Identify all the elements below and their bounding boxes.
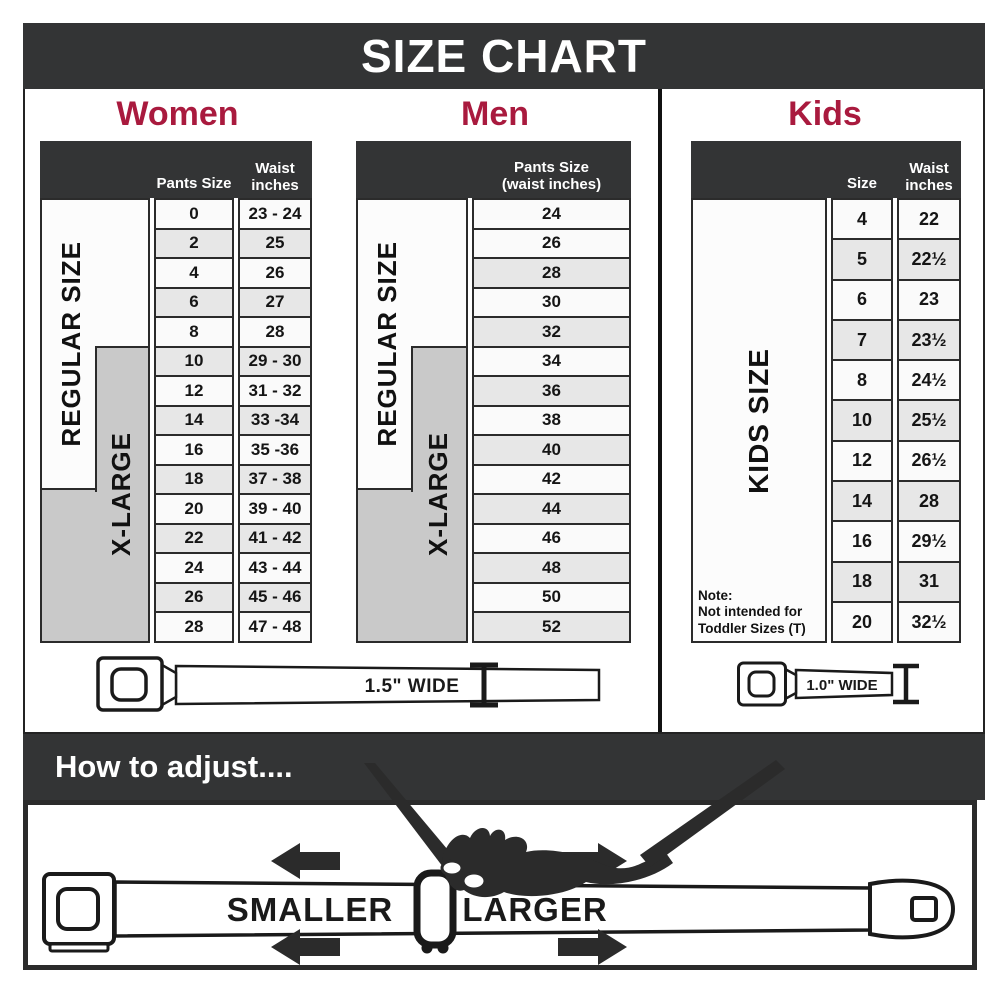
pants-size-cell: 14 bbox=[154, 405, 234, 437]
waist-cell: 28 bbox=[897, 480, 961, 522]
kids-size-box: KIDS SIZE Note: Not intended for Toddler… bbox=[691, 198, 827, 643]
women-size-table: Pants Size Waistinches REGULAR SIZE X-LA… bbox=[40, 141, 312, 643]
size-chart-panel: Women Men Kids Pants Size Waistinches RE… bbox=[23, 89, 985, 734]
table-row: 1831 bbox=[831, 561, 961, 603]
waist-cell: 26½ bbox=[897, 440, 961, 482]
men-size-table: Pants Size(waist inches) REGULAR SIZE X-… bbox=[356, 141, 631, 643]
size-cell: 5 bbox=[831, 238, 893, 280]
women-table-header: Pants Size Waistinches bbox=[40, 141, 312, 198]
waist-cell: 31 bbox=[897, 561, 961, 603]
men-table-body: REGULAR SIZE X-LARGE 24 26 28 30 32 34 3… bbox=[356, 198, 631, 643]
waist-cell: 22½ bbox=[897, 238, 961, 280]
page-title: SIZE CHART bbox=[23, 23, 985, 89]
table-row: 2241 - 42 bbox=[154, 523, 312, 555]
table-row: 26 bbox=[472, 228, 631, 260]
pants-size-cell: 36 bbox=[472, 375, 631, 407]
how-to-adjust-title: How to adjust.... bbox=[23, 734, 985, 800]
waist-cell: 25½ bbox=[897, 399, 961, 441]
xlarge-fill bbox=[356, 488, 413, 643]
kids-table-header: Size Waistinches bbox=[691, 141, 961, 198]
table-row: 1837 - 38 bbox=[154, 464, 312, 496]
table-row: 422 bbox=[831, 198, 961, 240]
pants-size-cell: 42 bbox=[472, 464, 631, 496]
xlarge-fill bbox=[40, 488, 97, 643]
women-side-labels: REGULAR SIZE X-LARGE bbox=[40, 198, 150, 643]
waist-cell: 23½ bbox=[897, 319, 961, 361]
arrow-left-icon bbox=[271, 843, 340, 879]
women-col-pants-size: Pants Size bbox=[154, 175, 234, 192]
table-row: 824½ bbox=[831, 359, 961, 401]
pants-size-cell: 26 bbox=[472, 228, 631, 260]
men-regular-size-label: REGULAR SIZE bbox=[372, 241, 403, 447]
kids-col-size: Size bbox=[831, 175, 893, 192]
women-rows: 023 - 24 225 426 627 828 1029 - 30 1231 … bbox=[154, 198, 312, 643]
pants-size-cell: 2 bbox=[154, 228, 234, 260]
waist-cell: 37 - 38 bbox=[238, 464, 312, 496]
pants-size-cell: 46 bbox=[472, 523, 631, 555]
waist-cell: 33 -34 bbox=[238, 405, 312, 437]
pants-size-cell: 22 bbox=[154, 523, 234, 555]
table-row: 2645 - 46 bbox=[154, 582, 312, 614]
waist-cell: 23 - 24 bbox=[238, 198, 312, 230]
pants-size-cell: 26 bbox=[154, 582, 234, 614]
adjustment-illustration: SMALLER LARGER bbox=[23, 800, 977, 970]
belt-adjuster-icon bbox=[417, 873, 453, 954]
how-to-adjust-banner: How to adjust.... bbox=[23, 734, 985, 800]
pants-size-cell: 28 bbox=[472, 257, 631, 289]
women-table-body: REGULAR SIZE X-LARGE 023 - 24 225 426 62… bbox=[40, 198, 312, 643]
table-row: 1226½ bbox=[831, 440, 961, 482]
table-row: 40 bbox=[472, 434, 631, 466]
table-row: 48 bbox=[472, 552, 631, 584]
pants-size-cell: 6 bbox=[154, 287, 234, 319]
table-row: 1025½ bbox=[831, 399, 961, 441]
smaller-label: SMALLER bbox=[227, 891, 394, 928]
size-cell: 10 bbox=[831, 399, 893, 441]
size-cell: 16 bbox=[831, 520, 893, 562]
table-row: 2443 - 44 bbox=[154, 552, 312, 584]
size-cell: 20 bbox=[831, 601, 893, 643]
table-row: 225 bbox=[154, 228, 312, 260]
waist-cell: 29½ bbox=[897, 520, 961, 562]
table-row: 34 bbox=[472, 346, 631, 378]
table-row: 023 - 24 bbox=[154, 198, 312, 230]
size-cell: 4 bbox=[831, 198, 893, 240]
table-row: 52 bbox=[472, 611, 631, 643]
pants-size-cell: 48 bbox=[472, 552, 631, 584]
waist-cell: 41 - 42 bbox=[238, 523, 312, 555]
table-row: 1231 - 32 bbox=[154, 375, 312, 407]
belt-tip-icon bbox=[870, 881, 953, 938]
pants-size-cell: 0 bbox=[154, 198, 234, 230]
table-row: 32 bbox=[472, 316, 631, 348]
pants-size-cell: 32 bbox=[472, 316, 631, 348]
panel-divider bbox=[658, 89, 662, 732]
table-row: 50 bbox=[472, 582, 631, 614]
waist-cell: 25 bbox=[238, 228, 312, 260]
waist-cell: 28 bbox=[238, 316, 312, 348]
women-regular-size-label: REGULAR SIZE bbox=[56, 241, 87, 447]
waist-cell: 43 - 44 bbox=[238, 552, 312, 584]
waist-cell: 22 bbox=[897, 198, 961, 240]
pants-size-cell: 52 bbox=[472, 611, 631, 643]
size-cell: 7 bbox=[831, 319, 893, 361]
size-cell: 12 bbox=[831, 440, 893, 482]
kids-rows: 422 522½ 623 723½ 824½ 1025½ 1226½ 1428 … bbox=[831, 198, 961, 643]
pants-size-cell: 18 bbox=[154, 464, 234, 496]
men-rows: 24 26 28 30 32 34 36 38 40 42 44 46 48 5… bbox=[472, 198, 631, 643]
pants-size-cell: 40 bbox=[472, 434, 631, 466]
table-row: 1428 bbox=[831, 480, 961, 522]
table-row: 30 bbox=[472, 287, 631, 319]
waist-cell: 26 bbox=[238, 257, 312, 289]
table-row: 522½ bbox=[831, 238, 961, 280]
kids-table-body: KIDS SIZE Note: Not intended for Toddler… bbox=[691, 198, 961, 643]
pants-size-cell: 24 bbox=[472, 198, 631, 230]
table-row: 828 bbox=[154, 316, 312, 348]
belt-buckle-icon bbox=[44, 874, 114, 951]
pants-size-cell: 16 bbox=[154, 434, 234, 466]
kids-note: Note: Not intended for Toddler Sizes (T) bbox=[698, 588, 806, 637]
pants-size-cell: 30 bbox=[472, 287, 631, 319]
kids-heading: Kids bbox=[715, 95, 935, 137]
table-row: 627 bbox=[154, 287, 312, 319]
size-cell: 18 bbox=[831, 561, 893, 603]
waist-cell: 31 - 32 bbox=[238, 375, 312, 407]
pants-size-cell: 4 bbox=[154, 257, 234, 289]
women-xlarge-label: X-LARGE bbox=[106, 432, 137, 556]
table-row: 1635 -36 bbox=[154, 434, 312, 466]
waist-cell: 29 - 30 bbox=[238, 346, 312, 378]
women-xlarge-box: X-LARGE bbox=[95, 346, 150, 643]
waist-cell: 35 -36 bbox=[238, 434, 312, 466]
table-row: 44 bbox=[472, 493, 631, 525]
adult-belt-icon: 1.5" WIDE bbox=[95, 653, 620, 715]
pants-size-cell: 10 bbox=[154, 346, 234, 378]
pants-size-cell: 20 bbox=[154, 493, 234, 525]
women-heading: Women bbox=[65, 95, 290, 137]
kids-size-label: KIDS SIZE bbox=[743, 348, 775, 494]
table-row: 28 bbox=[472, 257, 631, 289]
kids-belt-width-label: 1.0" WIDE bbox=[806, 677, 877, 694]
waist-cell: 47 - 48 bbox=[238, 611, 312, 643]
arrow-right-icon bbox=[558, 929, 627, 965]
waist-cell: 45 - 46 bbox=[238, 582, 312, 614]
table-row: 36 bbox=[472, 375, 631, 407]
men-table-header: Pants Size(waist inches) bbox=[356, 141, 631, 198]
men-xlarge-label: X-LARGE bbox=[423, 432, 454, 556]
waist-cell: 32½ bbox=[897, 601, 961, 643]
pants-size-cell: 50 bbox=[472, 582, 631, 614]
table-row: 2032½ bbox=[831, 601, 961, 643]
table-row: 24 bbox=[472, 198, 631, 230]
size-cell: 6 bbox=[831, 279, 893, 321]
table-row: 1029 - 30 bbox=[154, 346, 312, 378]
size-cell: 8 bbox=[831, 359, 893, 401]
waist-cell: 27 bbox=[238, 287, 312, 319]
pants-size-cell: 24 bbox=[154, 552, 234, 584]
adult-belt-width-label: 1.5" WIDE bbox=[365, 676, 460, 697]
width-marker-icon bbox=[893, 666, 919, 702]
pants-size-cell: 12 bbox=[154, 375, 234, 407]
kids-size-table: Size Waistinches KIDS SIZE Note: Not int… bbox=[691, 141, 961, 643]
men-side-labels: REGULAR SIZE X-LARGE bbox=[356, 198, 468, 643]
kids-col-waist: Waistinches bbox=[897, 160, 961, 195]
title-banner: SIZE CHART bbox=[23, 23, 985, 89]
pants-size-cell: 8 bbox=[154, 316, 234, 348]
pants-size-cell: 44 bbox=[472, 493, 631, 525]
pants-size-cell: 28 bbox=[154, 611, 234, 643]
women-col-waist: Waistinches bbox=[238, 160, 312, 195]
table-row: 426 bbox=[154, 257, 312, 289]
pants-size-cell: 38 bbox=[472, 405, 631, 437]
men-heading: Men bbox=[385, 95, 605, 137]
table-row: 1433 -34 bbox=[154, 405, 312, 437]
table-row: 723½ bbox=[831, 319, 961, 361]
pants-size-cell: 34 bbox=[472, 346, 631, 378]
table-row: 2039 - 40 bbox=[154, 493, 312, 525]
waist-cell: 39 - 40 bbox=[238, 493, 312, 525]
table-row: 2847 - 48 bbox=[154, 611, 312, 643]
table-row: 1629½ bbox=[831, 520, 961, 562]
table-row: 38 bbox=[472, 405, 631, 437]
kids-side-labels: KIDS SIZE Note: Not intended for Toddler… bbox=[691, 198, 827, 643]
men-xlarge-box: X-LARGE bbox=[411, 346, 468, 643]
waist-cell: 23 bbox=[897, 279, 961, 321]
kids-belt-icon: 1.0" WIDE bbox=[736, 660, 931, 708]
waist-cell: 24½ bbox=[897, 359, 961, 401]
men-col-pants-size: Pants Size(waist inches) bbox=[472, 159, 631, 194]
table-row: 42 bbox=[472, 464, 631, 496]
table-row: 46 bbox=[472, 523, 631, 555]
size-cell: 14 bbox=[831, 480, 893, 522]
table-row: 623 bbox=[831, 279, 961, 321]
size-chart-page: SIZE CHART Women Men Kids Pants Size Wai… bbox=[0, 0, 1000, 1000]
